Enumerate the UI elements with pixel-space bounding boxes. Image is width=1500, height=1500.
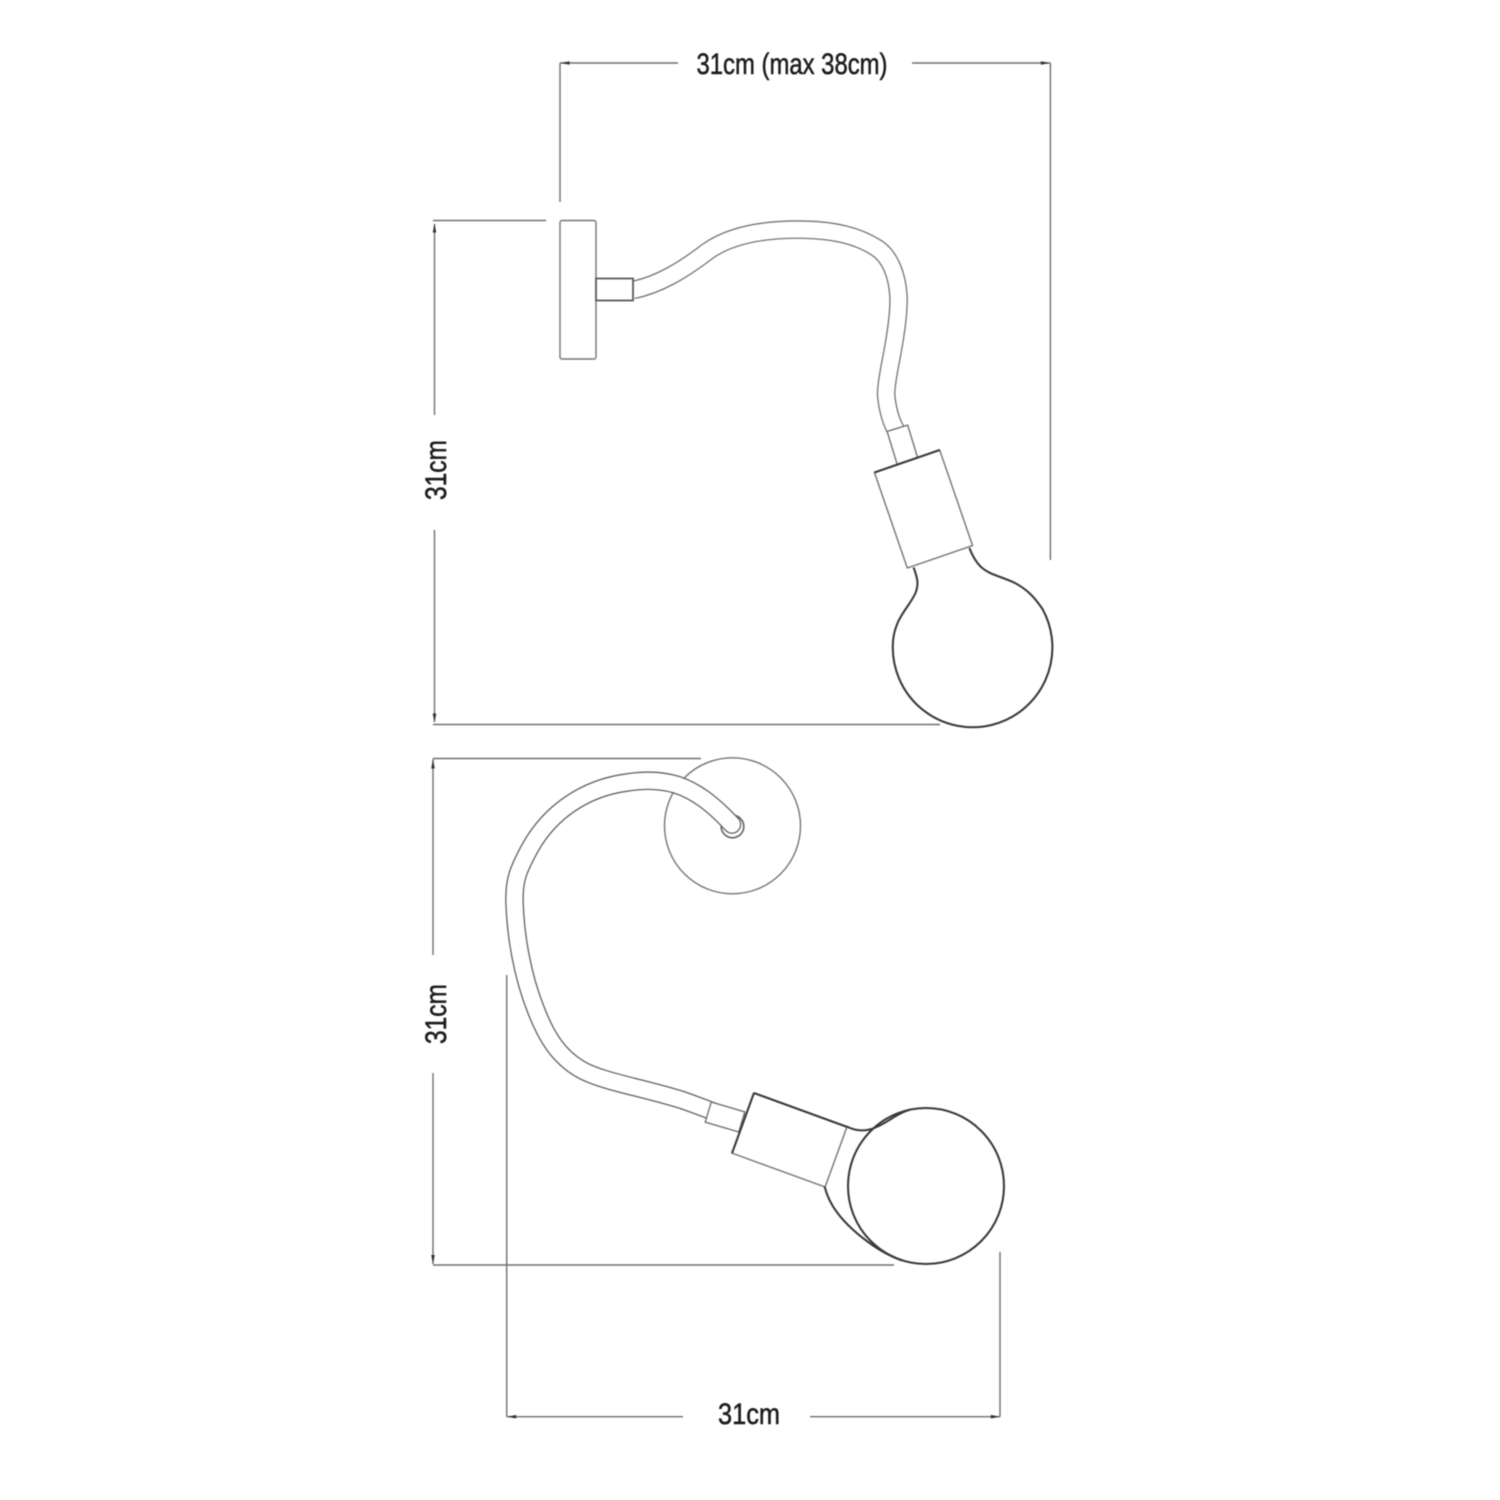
svg-text:31cm: 31cm <box>420 984 453 1044</box>
svg-text:31cm (max 38cm): 31cm (max 38cm) <box>697 48 888 81</box>
svg-text:31cm: 31cm <box>718 1398 780 1431</box>
svg-text:31cm: 31cm <box>420 440 453 500</box>
